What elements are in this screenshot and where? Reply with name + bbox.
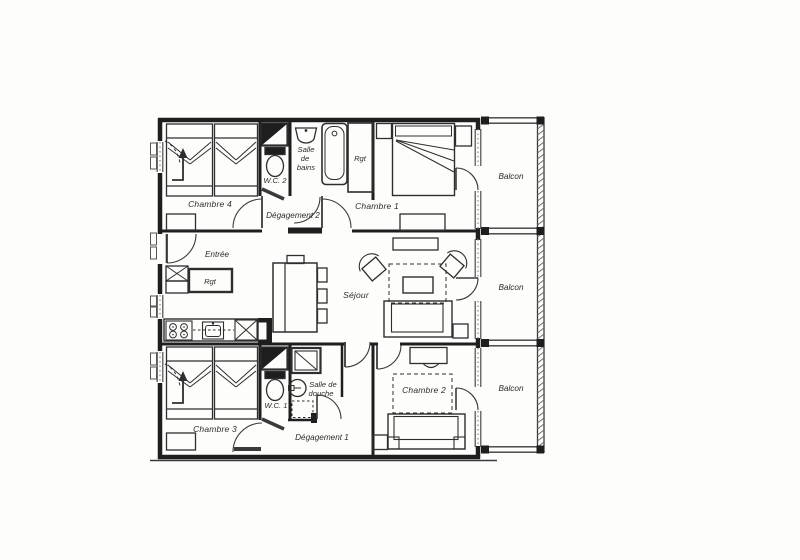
room-label-balcon-2: Balcon [498,283,523,292]
room-label-rgt-entree: Rgt [204,277,217,286]
room-label-salle-de-bains-1: Salle [298,145,315,154]
room-label-salle-de-douche-1: Salle de [309,380,336,389]
kitchen-wall-stub-notch [258,323,267,340]
room-label-rgt-haut: Rgt [354,154,367,163]
room-label-chambre-3: Chambre 3 [193,424,237,434]
room-label-degagement-1: Dégagement 1 [295,433,349,442]
paper-background [0,0,800,560]
door-post [311,413,317,423]
room-label-degagement-2: Dégagement 2 [266,211,320,220]
room-label-chambre-2: Chambre 2 [402,385,446,395]
room-label-sejour: Séjour [343,290,370,300]
room-label-salle-de-bains-3: bains [297,163,315,172]
threshold-wall-segment [288,228,322,234]
room-label-wc-1: W.C. 1 [265,401,288,410]
room-label-salle-de-bains-2: de [301,154,309,163]
room-label-balcon-3: Balcon [498,384,523,393]
room-label-wc-2: W.C. 2 [264,176,288,185]
room-label-chambre-4: Chambre 4 [188,199,232,209]
room-label-balcon-1: Balcon [498,172,523,181]
room-label-entree: Entrée [205,250,230,259]
floor-plan-canvas: Chambre 4 W.C. 2 Salle de bains Rgt Cham… [0,0,800,560]
room-label-chambre-1: Chambre 1 [355,201,399,211]
scanned-floor-plan-page: Chambre 4 W.C. 2 Salle de bains Rgt Cham… [0,0,800,560]
room-label-salle-de-douche-2: douche [309,389,334,398]
